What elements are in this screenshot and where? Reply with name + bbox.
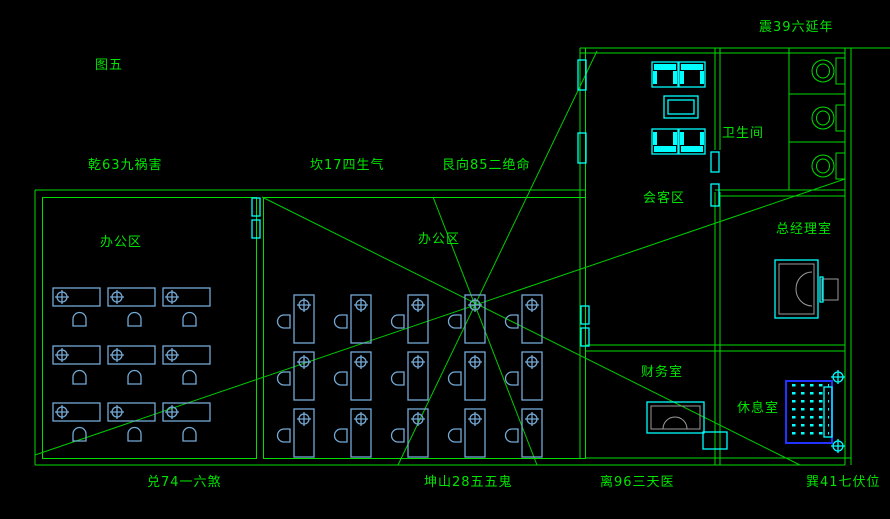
sofa: [652, 62, 678, 87]
desk: [108, 288, 155, 326]
label-kun: 坤山28五五鬼: [424, 476, 513, 490]
floorplan-drawing: [0, 0, 890, 519]
label-xun: 巽41七伏位: [806, 476, 881, 490]
desk: [392, 295, 429, 343]
desk: [335, 352, 372, 400]
desk: [449, 352, 486, 400]
room-label-lounge: 休息室: [737, 402, 779, 416]
meeting-room-furniture: [652, 62, 705, 154]
label-dui: 兑74一六煞: [147, 476, 222, 490]
desk: [506, 352, 543, 400]
toilet: [812, 58, 845, 84]
desk: [278, 352, 315, 400]
desk: [335, 295, 372, 343]
figure-label: 图五: [95, 59, 123, 73]
bed-mattress-dots: [789, 384, 829, 440]
desk: [506, 295, 543, 343]
desk: [278, 295, 315, 343]
cad-floorplan-canvas: 图五 乾63九祸害 坎17四生气 艮向85二绝命 震39六延年 兑74一六煞 坤…: [0, 0, 890, 519]
coffee-table: [664, 96, 698, 118]
desk: [108, 346, 155, 384]
desk: [53, 288, 100, 326]
wall-fixture-symbol: [831, 370, 845, 384]
desk: [163, 346, 210, 384]
desk: [506, 409, 543, 457]
coffee-table-top: [668, 100, 694, 114]
lounge-furniture: [786, 370, 845, 453]
label-kan: 坎17四生气: [310, 159, 385, 173]
bathroom-toilets: [812, 58, 845, 179]
sofa: [652, 129, 678, 154]
toilet: [812, 153, 845, 179]
desk: [278, 409, 315, 457]
desk: [163, 288, 210, 326]
room-label-bathroom: 卫生间: [722, 127, 764, 141]
gm-chair: [822, 279, 838, 300]
room-label-office-left: 办公区: [100, 236, 142, 250]
room-label-meeting: 会客区: [643, 192, 685, 206]
desk: [53, 346, 100, 384]
toilet: [812, 105, 845, 131]
desk: [392, 352, 429, 400]
wall-fixture-symbol: [831, 439, 845, 453]
desk: [449, 295, 486, 343]
desk: [335, 409, 372, 457]
label-qian: 乾63九祸害: [88, 159, 163, 173]
room-label-gm-office: 总经理室: [776, 223, 832, 237]
desk: [392, 409, 429, 457]
label-gen: 艮向85二绝命: [442, 159, 531, 173]
desk: [449, 409, 486, 457]
office-left-desks: [53, 288, 210, 441]
bagua-sector-lines: [35, 51, 845, 465]
room-label-office-middle: 办公区: [418, 233, 460, 247]
room-label-finance: 财务室: [641, 366, 683, 380]
sofa: [679, 129, 705, 154]
label-li: 离96三天医: [600, 476, 675, 490]
gm-office-furniture: [775, 260, 838, 318]
label-zhen: 震39六延年: [759, 21, 834, 35]
sofa: [679, 62, 705, 87]
